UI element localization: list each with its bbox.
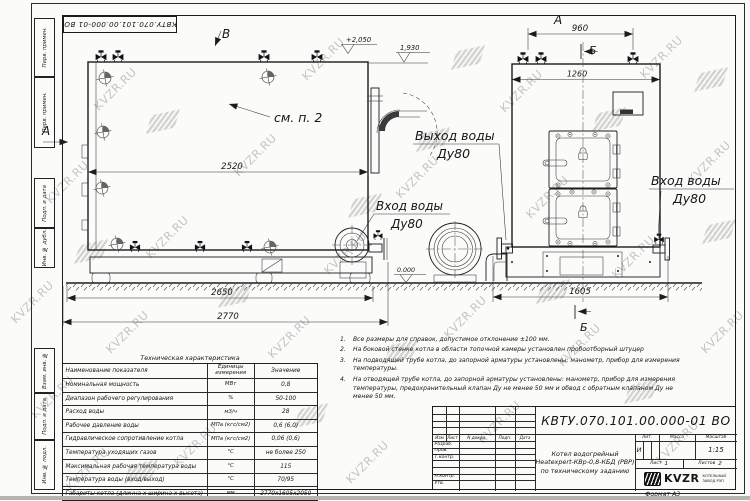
table-cell: 50-100 <box>254 393 318 406</box>
table-cell: м3/ч <box>207 406 254 419</box>
table-row: Температура воды (вход/выход)°С70/95 <box>63 473 317 487</box>
furnace-door-upper <box>543 131 620 188</box>
elev-zero-label: 0.000 <box>397 267 415 274</box>
margin-box-vzam-inv: Взам. инв. № <box>34 348 55 393</box>
doc-number: КВТУ.070.101.00.000-01 ВО <box>535 407 737 434</box>
tb-header-ndoc: N докум. <box>459 434 495 441</box>
note-item: 1. Все размеры для справок, допустимое о… <box>340 336 692 345</box>
valve-icon <box>628 52 639 64</box>
table-cell: Температура уходящих газов <box>63 447 207 460</box>
tb-header-izm: Изм <box>433 434 446 441</box>
table-row: Температура уходящих газов°Сне более 250 <box>63 446 317 460</box>
hinge-icon <box>613 203 620 212</box>
valve-icon <box>374 230 383 240</box>
tech-table: Наименование показателя Единицы измерени… <box>62 363 318 501</box>
view-label-b-top: Б <box>589 44 597 57</box>
tb-mass-label: Масса <box>659 434 695 441</box>
table-header-row: Наименование показателя Единицы измерени… <box>63 364 317 378</box>
margin-box-podp-data-1: Подп. и дата <box>34 178 55 228</box>
table-cell: 115 <box>254 460 318 473</box>
table-cell: 0,06 (0,6) <box>254 433 318 446</box>
furnace-door-lower <box>543 189 620 246</box>
tb-header-data: Дата <box>515 434 535 441</box>
dim-front-top: 960 <box>572 24 588 34</box>
table-cell: 28 <box>254 406 318 419</box>
datum-target-icon <box>97 70 114 87</box>
tb-row-tkontr: Т.контр. <box>433 454 461 460</box>
valve-icon <box>536 52 547 64</box>
table-row: Гидравлическое сопротивление котлаМПа (к… <box>63 432 317 446</box>
table-cell: Рабочее давление воды <box>63 420 207 433</box>
table-cell: °С <box>207 460 254 473</box>
table-cell: 0,8 <box>254 379 318 392</box>
table-header-cell: Значение <box>254 364 318 378</box>
valve-icon <box>518 52 529 64</box>
table-cell: °С <box>207 474 254 487</box>
table-row: Номинальная мощностьМВт0,8 <box>63 378 317 392</box>
note-item: 4. На отводящей трубе котла, до запорной… <box>340 376 692 402</box>
note-item: 2. На боковой стенке котла в области топ… <box>340 346 692 355</box>
margin-box-sprav: Перв. примен. <box>34 77 55 148</box>
inlet-label-front-line2: Ду80 <box>672 191 706 206</box>
table-cell: °С <box>207 447 254 460</box>
table-row: Диапазон рабочего регулирования%50-100 <box>63 392 317 406</box>
tech-table-body: Номинальная мощностьМВт0,8Диапазон рабоч… <box>63 378 317 500</box>
valve-icon <box>312 50 323 62</box>
outlet-label-line1: Выход воды <box>415 128 495 143</box>
factory-logo: KVZR КОТЕЛЬНЫЙ ЗАВОД РЭП <box>635 468 735 489</box>
fan-blower <box>426 221 484 282</box>
tb-row-utv: Утв. <box>433 480 461 487</box>
dim-front-width: 1260 <box>567 70 587 79</box>
margin-box-perv-primen: Перв. примен. <box>34 18 55 77</box>
note-item: 3. На подводящей трубе котла, до запорно… <box>340 357 692 375</box>
table-cell: не более 250 <box>254 447 318 460</box>
inlet-label-side-line1: Вход воды <box>376 199 443 213</box>
datum-target-icon <box>262 239 279 256</box>
front-view <box>426 42 670 302</box>
tb-sheets: Листов 2 <box>683 459 737 468</box>
view-label-a-top: А <box>553 13 562 27</box>
valve-icon <box>113 50 124 62</box>
hinge-icon <box>613 145 620 154</box>
notes-list: 1. Все размеры для справок, допустимое о… <box>340 336 692 404</box>
tb-lit-value: И <box>635 441 643 459</box>
tb-header-list: Лист <box>446 434 459 441</box>
datum-target-icon <box>260 69 277 86</box>
margin-box-inv-podl: Инв. № подл. <box>34 440 55 490</box>
margin-box-inv-dubl: Инв. № дубл. <box>34 228 55 268</box>
table-cell: МВт <box>207 379 254 392</box>
table-cell: Температура воды (вход/выход) <box>63 474 207 487</box>
hinge-icon <box>613 169 620 178</box>
table-header-cell: Наименование показателя <box>63 364 207 378</box>
dim-front-base: 1605 <box>569 287 591 297</box>
inlet-label-front-line1: Вход воды <box>651 173 721 188</box>
dimensions: 2520 2650 2770 960 1260 1605 +2,050 1,93… <box>63 24 668 326</box>
sheet-edge <box>0 496 750 500</box>
table-cell: 0,6 (6,0) <box>254 420 318 433</box>
dim-side-total: 2770 <box>217 312 239 322</box>
elev-top-label: +2,050 <box>346 36 371 44</box>
table-cell: МПа (кгс/см2) <box>207 420 254 433</box>
tb-scale-value: 1:15 <box>695 441 737 459</box>
kvzr-logo-text: KVZR <box>664 472 699 485</box>
tb-header-podp: Подп. <box>495 434 515 441</box>
kvzr-logo-subtitle: КОТЕЛЬНЫЙ ЗАВОД РЭП <box>702 474 726 483</box>
hinge-icon <box>613 227 620 236</box>
view-label-v: В <box>222 27 230 41</box>
table-cell: МПа (кгс/см2) <box>207 433 254 446</box>
margin-box-podp-data-2: Подп. и дата <box>34 393 55 440</box>
table-cell: Расход воды <box>63 406 207 419</box>
valve-icon <box>96 50 107 62</box>
door-handle-icon <box>543 218 567 224</box>
elev-mid-label: 1,930 <box>400 44 419 52</box>
tb-sheet: Лист 1 <box>635 459 683 468</box>
ground-line <box>66 283 702 291</box>
dim-side-base: 2650 <box>211 288 233 298</box>
table-cell: Гидравлическое сопротивление котла <box>63 433 207 446</box>
inlet-label-side-line2: Ду80 <box>390 217 423 231</box>
table-header-cell: Единицы измерения <box>207 364 254 378</box>
table-cell: % <box>207 393 254 406</box>
table-cell: 70/95 <box>254 474 318 487</box>
valve-icon <box>259 50 270 62</box>
valve-icon <box>654 234 664 244</box>
kvzr-logo-icon <box>644 472 661 486</box>
tb-scale-label: Масштаб <box>695 434 737 441</box>
table-cell: Номинальная мощность <box>63 379 207 392</box>
view-label-b-bottom: Б <box>580 321 588 334</box>
table-row: Максимальная рабочая температура воды°С1… <box>63 459 317 473</box>
table-cell: Максимальная рабочая температура воды <box>63 460 207 473</box>
datum-target-icon <box>95 124 112 141</box>
title-block: КВТУ.070.101.00.000-01 ВО Изм Лист N док… <box>432 406 736 490</box>
side-view <box>82 50 437 283</box>
see-note-callout: см. п. 2 <box>274 110 322 125</box>
tb-lit-label: Лит. <box>635 434 659 441</box>
table-cell: Диапазон рабочего регулирования <box>63 393 207 406</box>
table-row: Рабочее давление водыМПа (кгс/см2)0,6 (6… <box>63 419 317 433</box>
product-name: Котел водогрейный Heatexpert-КВр-0,8-КБД… <box>535 434 635 491</box>
door-handle-icon <box>543 160 567 166</box>
tech-table-title: Техническая характеристика <box>62 354 318 362</box>
outlet-label-line2: Ду80 <box>436 146 470 161</box>
dim-side-mid: 2520 <box>221 162 243 172</box>
top-stamp-doc-number: КВТУ.070.101.00.000-01 ВО <box>63 16 177 33</box>
table-row: Расход водым3/ч28 <box>63 405 317 419</box>
